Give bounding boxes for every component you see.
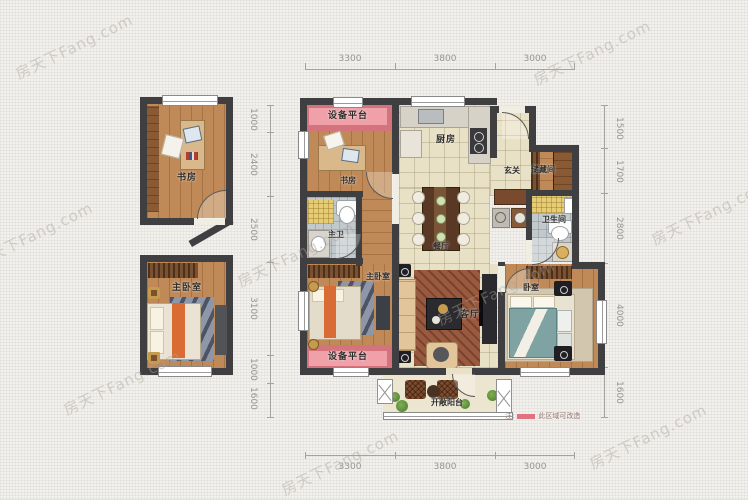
plate — [436, 196, 446, 206]
pillow — [150, 331, 164, 354]
dim-right-4: 4000 — [614, 291, 624, 339]
toilet-bowl — [339, 206, 355, 224]
bed-runner — [172, 303, 185, 358]
legend: 注: 此区域可改造 — [505, 411, 580, 421]
storage-label: 储藏间 — [522, 164, 564, 175]
living-label: 客厅 — [452, 310, 488, 321]
watermark: 房天下Fang.com — [0, 197, 96, 272]
study-left-window — [162, 95, 218, 106]
master-center-label: 主卧室 — [354, 271, 402, 282]
master-bath-label: 主卫 — [318, 229, 354, 240]
window — [333, 97, 363, 108]
stove-burner — [474, 143, 484, 153]
nightstand-lamp — [148, 352, 160, 364]
dim-left-6: 1600 — [248, 378, 258, 418]
dining-chair — [412, 191, 425, 204]
bathroom-label: 卫生间 — [532, 214, 576, 225]
dim-bottom-2: 3800 — [405, 462, 485, 472]
dim-right-2: 1700 — [614, 150, 624, 192]
dim-left-2: 2400 — [248, 140, 258, 188]
plate — [436, 214, 446, 224]
speaker — [554, 281, 572, 296]
equip-top-label: 设备平台 — [304, 111, 392, 122]
tv-console — [215, 305, 227, 355]
lamp — [308, 281, 319, 292]
wardrobe — [526, 266, 572, 279]
tv-console — [482, 274, 497, 344]
balcony-railing — [383, 412, 513, 420]
dim-left-4: 3100 — [248, 284, 258, 332]
bed-runner — [324, 286, 336, 338]
washer-door — [495, 212, 506, 223]
master-left-window — [158, 366, 212, 377]
dresser — [376, 296, 390, 330]
study-left-door-gap — [194, 218, 225, 225]
pillow — [533, 296, 555, 308]
pillow — [510, 296, 532, 308]
books — [186, 152, 198, 160]
legend-swatch — [517, 414, 535, 419]
legend-label: 注: — [505, 411, 514, 421]
plant — [396, 400, 408, 412]
dim-bottom-1: 3300 — [310, 462, 390, 472]
kitchen-window — [411, 96, 465, 107]
equip-bottom-label: 设备平台 — [304, 352, 392, 363]
bookshelf — [147, 106, 159, 212]
kitchen-label: 厨房 — [426, 135, 466, 146]
dim-right-1: 1500 — [614, 112, 624, 144]
tray — [432, 316, 440, 324]
dim-top-2: 3800 — [405, 54, 485, 64]
dim-left-1: 1000 — [248, 106, 258, 132]
floorplan-page: { "watermark": { "text": "房天下Fang.com" }… — [0, 0, 748, 499]
kitchen-sink — [418, 109, 444, 124]
dining-chair — [412, 212, 425, 225]
dim-top-1: 3300 — [310, 54, 390, 64]
window — [333, 367, 369, 377]
nightstand-lamp — [148, 287, 160, 299]
window — [298, 131, 309, 159]
cushion — [557, 310, 572, 332]
speaker — [554, 346, 572, 361]
fridge — [400, 130, 422, 158]
watermark: 房天下Fang.com — [530, 15, 655, 90]
dim-right-3: 2800 — [614, 204, 624, 252]
blanket — [509, 308, 557, 358]
dining-chair — [457, 212, 470, 225]
watermark: 房天下Fang.com — [648, 175, 748, 250]
dim-left-3: 2500 — [248, 205, 258, 253]
laptop — [341, 148, 360, 163]
tray — [438, 304, 448, 314]
dining-chair — [457, 233, 470, 246]
bedroom-right-label: 卧室 — [516, 282, 546, 293]
basin-bowl — [514, 212, 526, 224]
watermark: 房天下Fang.com — [12, 9, 137, 84]
balcony-pillar — [377, 379, 393, 404]
study-left-label: 书房 — [162, 173, 212, 184]
wardrobe — [308, 265, 360, 278]
dim-top-3: 3000 — [495, 54, 575, 64]
master-left-label: 主卧室 — [162, 283, 212, 294]
bedroom-bottom-window — [520, 367, 570, 377]
sink-bowl — [556, 246, 569, 259]
dim-bottom-3: 3000 — [495, 462, 575, 472]
shower-area — [308, 200, 334, 224]
wardrobe — [148, 263, 198, 278]
balcony-label: 开敞阳台 — [420, 397, 474, 408]
stove-burner — [474, 132, 484, 142]
study-center-label: 书房 — [326, 175, 370, 186]
bedroom-window — [596, 300, 607, 344]
dining-chair — [457, 191, 470, 204]
dim-right-5: 1600 — [614, 372, 624, 412]
legend-note: 此区域可改造 — [538, 411, 580, 421]
window — [298, 291, 309, 331]
sofa — [398, 279, 416, 351]
armchair-seat — [433, 347, 449, 362]
pillow — [150, 307, 164, 330]
dining-label: 餐厅 — [424, 241, 458, 252]
lamp — [308, 339, 319, 350]
